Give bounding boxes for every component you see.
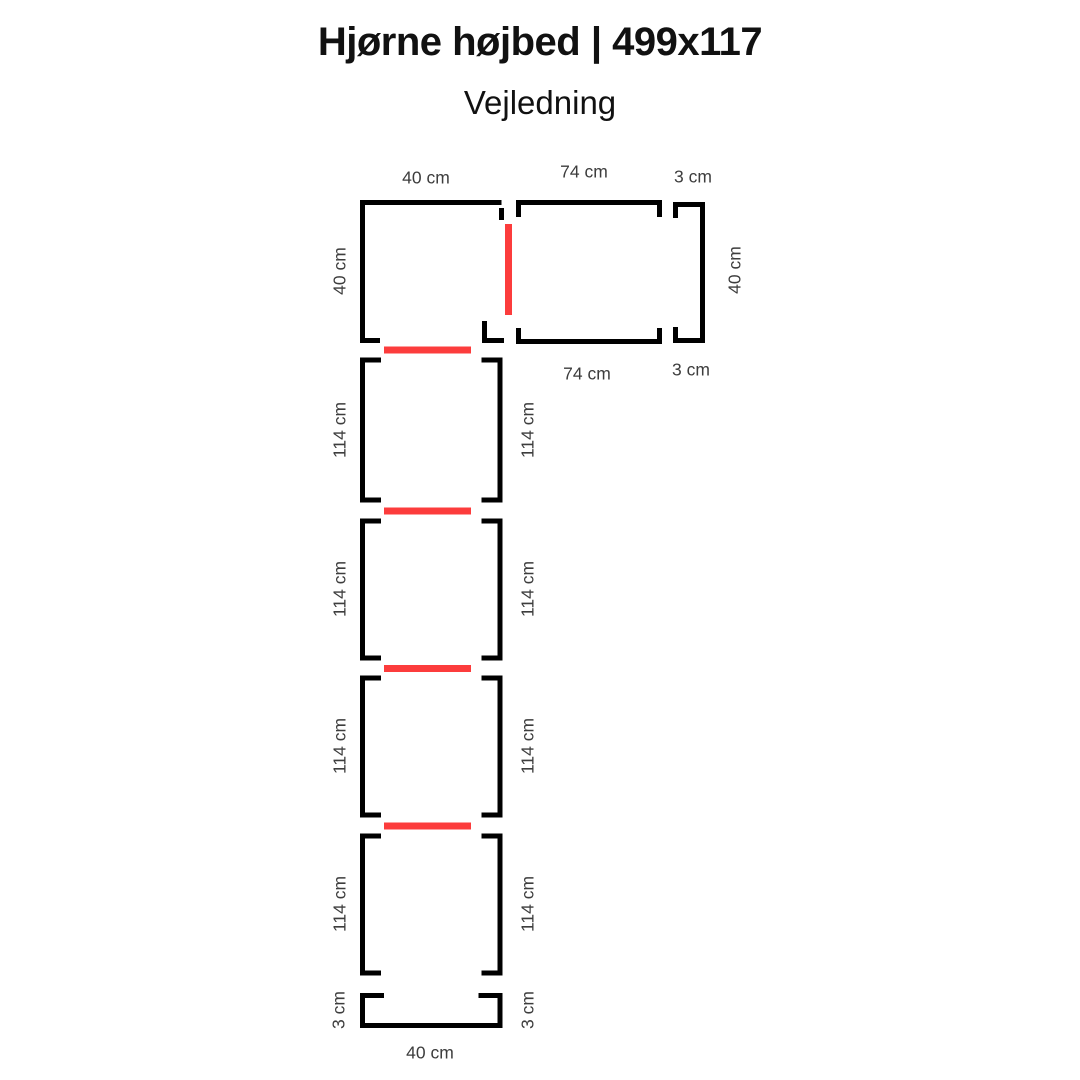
- dim-section-2-right: 114 cm: [518, 561, 539, 617]
- bottom-end-cap-outline: [363, 996, 501, 1026]
- column-section-4-right-bracket: [482, 836, 501, 973]
- dim-bottom-cap-left: 3 cm: [329, 991, 350, 1029]
- assembly-diagram: 40 cm 40 cm 74 cm 74 cm 3 cm 3 cm 40 cm …: [0, 0, 1080, 1080]
- dim-right-cap-side: 40 cm: [725, 246, 746, 294]
- long-section-top-edge: [519, 203, 660, 218]
- corner-section-outline: [363, 203, 502, 341]
- diagram-canvas: [0, 0, 1080, 1080]
- column-section-4-left-bracket: [363, 836, 382, 973]
- dim-bottom-cap-right: 3 cm: [518, 991, 539, 1029]
- instruction-page: Hjørne højbed | 499x117 Vejledning: [0, 0, 1080, 1080]
- dim-corner-top: 40 cm: [402, 168, 450, 189]
- column-section-1-right-bracket: [482, 360, 501, 500]
- column-section-2-right-bracket: [482, 521, 501, 658]
- corner-section-bottom-right-stub: [485, 321, 505, 341]
- dim-section-4-right: 114 cm: [518, 876, 539, 932]
- column-section-3-left-bracket: [363, 678, 382, 815]
- dim-right-cap-top: 3 cm: [674, 167, 712, 188]
- dim-long-bottom: 74 cm: [563, 364, 611, 385]
- column-section-3-right-bracket: [482, 678, 501, 815]
- dim-section-1-left: 114 cm: [330, 402, 351, 458]
- dim-corner-left: 40 cm: [330, 247, 351, 295]
- dim-section-4-left: 114 cm: [330, 876, 351, 932]
- column-section-2-left-bracket: [363, 521, 382, 658]
- dim-right-cap-bottom: 3 cm: [672, 360, 710, 381]
- long-section-bottom-edge: [519, 328, 660, 342]
- dim-section-3-left: 114 cm: [330, 718, 351, 774]
- dim-bottom-cap-width: 40 cm: [406, 1043, 454, 1064]
- dim-section-1-right: 114 cm: [518, 402, 539, 458]
- column-section-1-left-bracket: [363, 360, 382, 500]
- dim-section-3-right: 114 cm: [518, 718, 539, 774]
- dim-long-top: 74 cm: [560, 162, 608, 183]
- right-end-cap-outline: [676, 205, 703, 341]
- dim-section-2-left: 114 cm: [330, 561, 351, 617]
